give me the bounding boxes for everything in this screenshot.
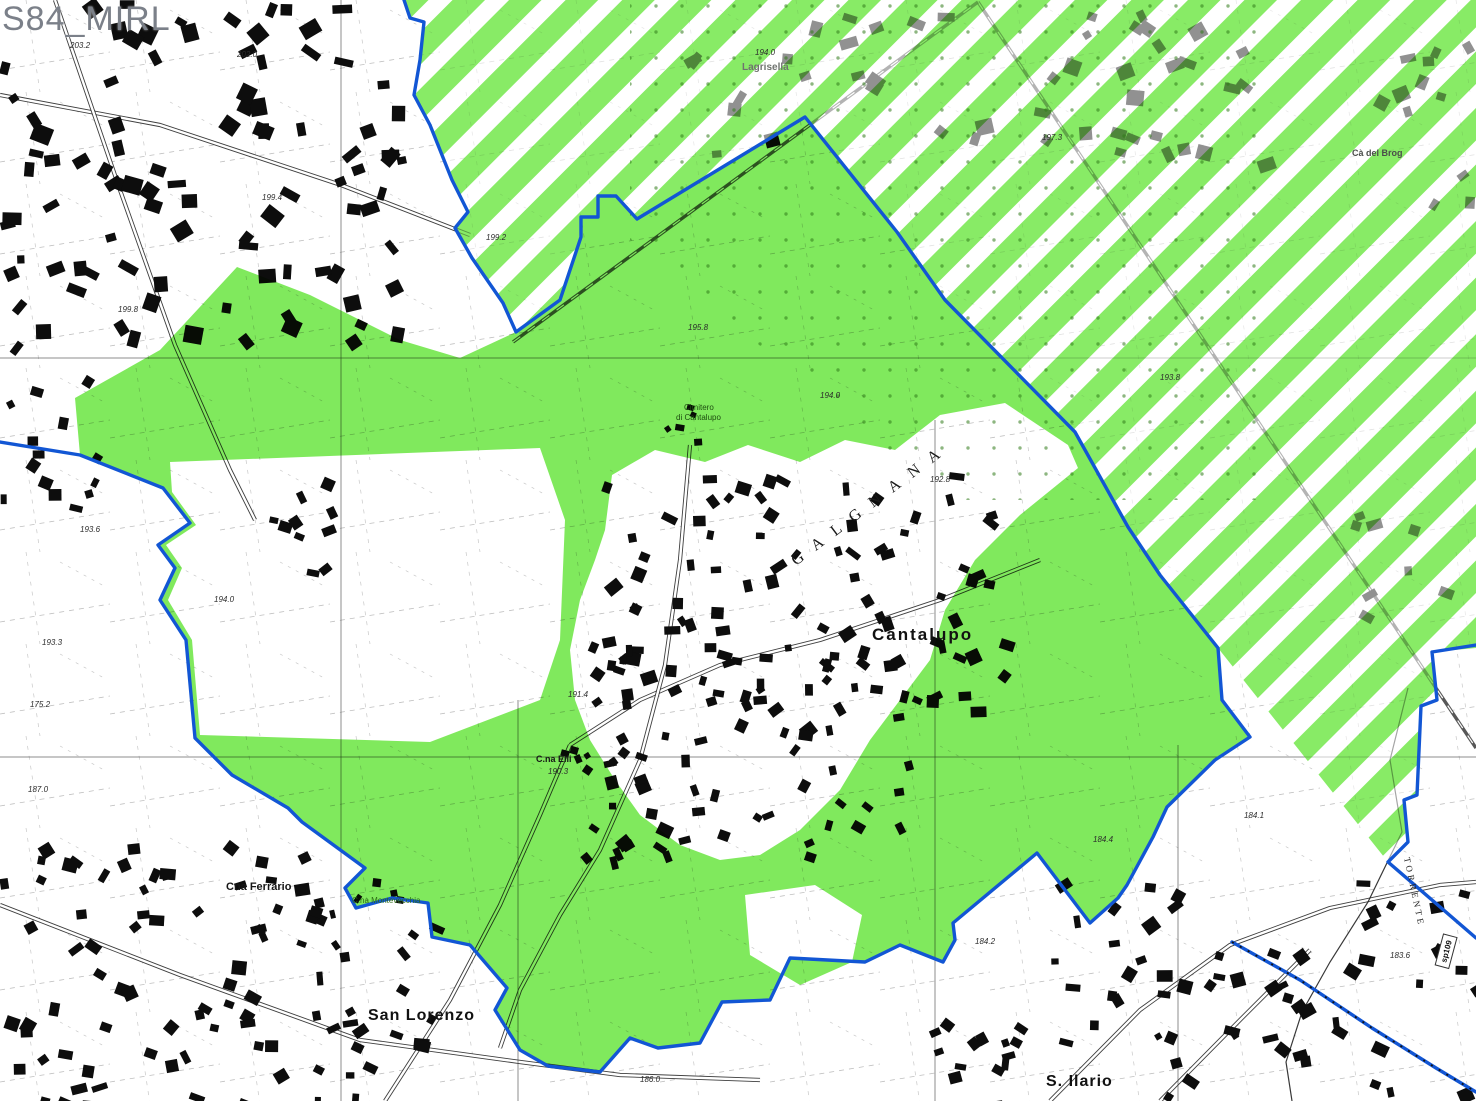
elevation-label: 199.4 <box>262 193 283 202</box>
map-label: Lagrisella <box>742 62 789 73</box>
topographic-map: CantalupoSan LorenzoS. IlarioCna Ferrari… <box>0 0 1476 1101</box>
map-viewport[interactable]: CantalupoSan LorenzoS. IlarioCna Ferrari… <box>0 0 1476 1101</box>
map-label: Cna Ferrario <box>226 881 292 893</box>
elevation-label: 184.2 <box>975 937 996 946</box>
elevation-label: 191.4 <box>568 690 589 699</box>
elevation-label: 190.3 <box>548 767 569 776</box>
map-label: Cantalupo <box>872 625 973 644</box>
map-label: S. Ilario <box>1046 1073 1113 1090</box>
elevation-label: 184.1 <box>1244 811 1264 820</box>
map-label: San Lorenzo <box>368 1007 475 1024</box>
map-label: Cà del Brog <box>1352 148 1403 158</box>
elevation-label: 192.8 <box>930 475 951 484</box>
elevation-label: 193.3 <box>42 638 63 647</box>
elevation-label: 203.2 <box>69 41 91 50</box>
elevation-label: 197.3 <box>1042 133 1063 142</box>
elevation-label: 193.6 <box>80 525 101 534</box>
elevation-label: 199.8 <box>118 305 139 314</box>
map-label: C.na Elli <box>536 754 572 764</box>
elevation-label: 194.0 <box>820 391 841 400</box>
elevation-label: 183.6 <box>1390 951 1411 960</box>
elevation-label: 175.2 <box>30 700 51 709</box>
elevation-label: 187.0 <box>28 785 49 794</box>
elevation-label: 202.0 <box>236 50 258 59</box>
layer-code-watermark: S84_MIRL <box>2 2 171 36</box>
elevation-label: 199.2 <box>486 233 507 242</box>
elevation-label: 194.0 <box>214 595 235 604</box>
map-label: Cimitero <box>684 403 714 412</box>
elevation-label: 186.0 <box>640 1075 661 1084</box>
elevation-label: 194.0 <box>755 48 776 57</box>
elevation-label: 193.8 <box>1160 373 1181 382</box>
map-label: C.na Montevecchia <box>352 896 421 905</box>
elevation-label: 195.8 <box>688 323 709 332</box>
map-label: di Cantalupo <box>676 413 721 422</box>
elevation-label: 184.4 <box>1093 835 1114 844</box>
